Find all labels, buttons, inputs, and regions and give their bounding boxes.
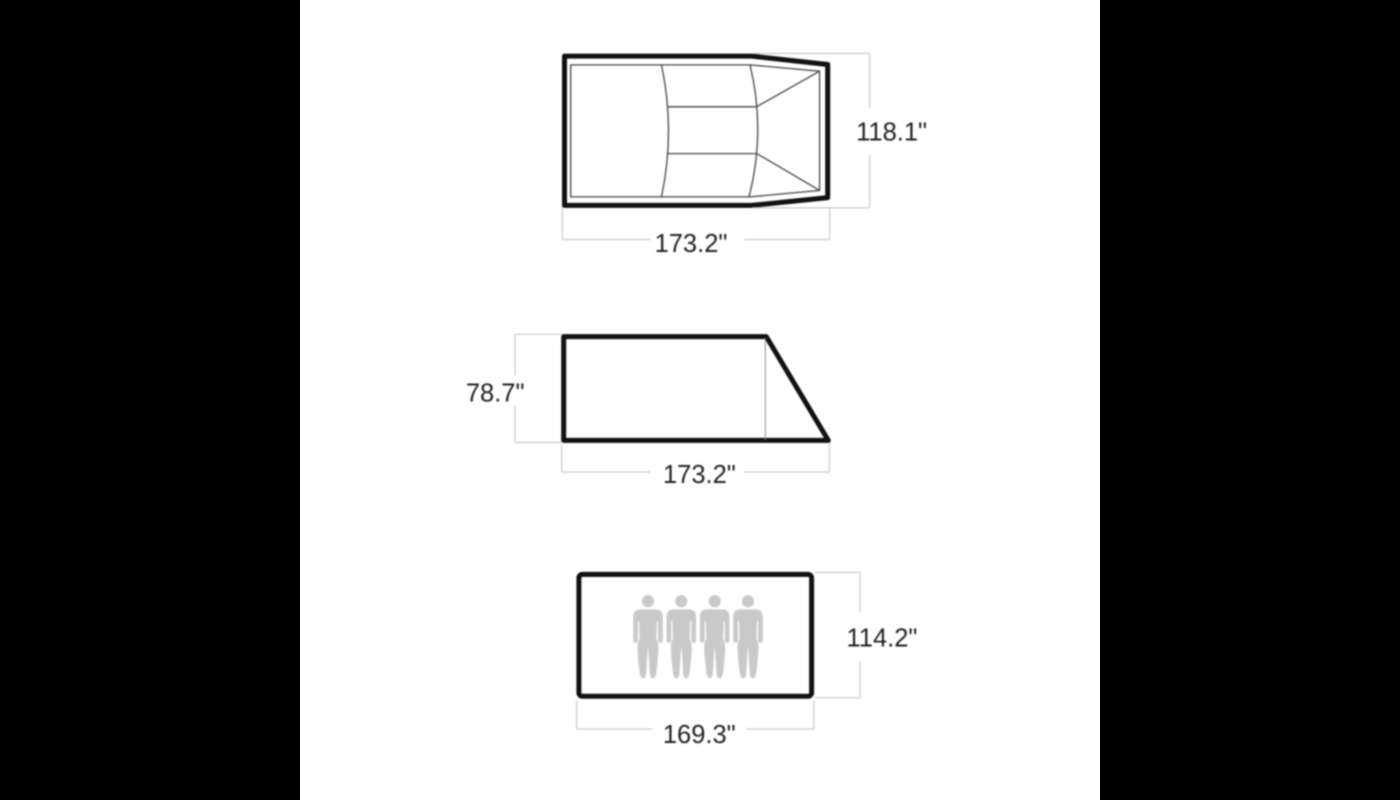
svg-text:173.2": 173.2" <box>663 461 736 489</box>
svg-text:118.1": 118.1" <box>856 119 927 147</box>
svg-text:169.3": 169.3" <box>663 721 736 749</box>
svg-text:78.7": 78.7" <box>466 379 525 407</box>
svg-text:114.2": 114.2" <box>847 625 918 653</box>
svg-text:173.2": 173.2" <box>655 230 728 258</box>
